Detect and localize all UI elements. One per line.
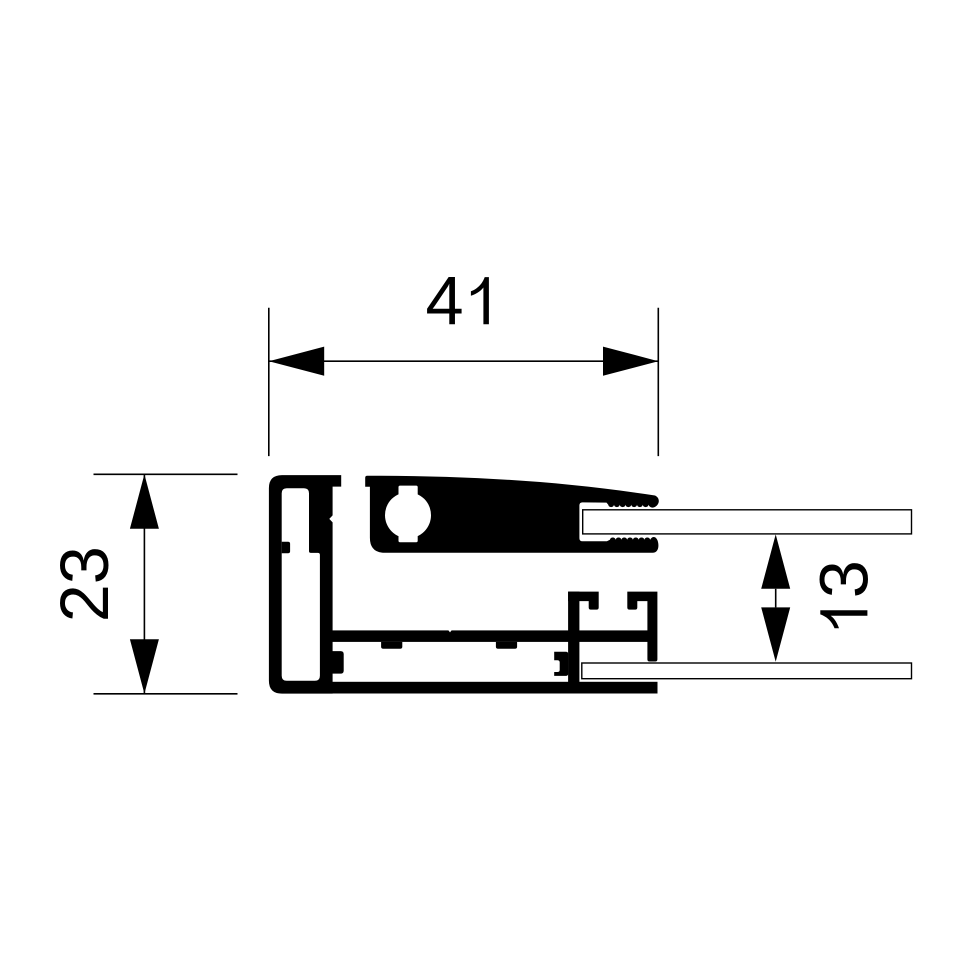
svg-text:3: 3 (805, 560, 882, 598)
svg-text:4: 4 (426, 262, 464, 339)
svg-text:23: 23 (46, 546, 123, 622)
